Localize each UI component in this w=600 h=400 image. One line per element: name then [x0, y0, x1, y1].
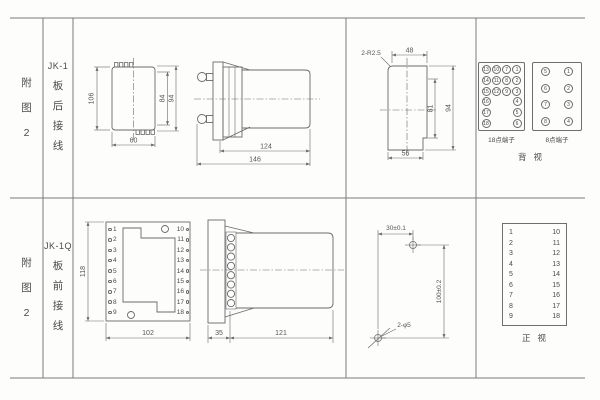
- terminal-circle: 14: [482, 76, 491, 85]
- pin-number: 4: [113, 257, 117, 264]
- pin-number: 13: [177, 257, 184, 264]
- pin-number: 8: [113, 299, 117, 306]
- mapping-right: 14: [552, 271, 560, 278]
- terminal-circle: 12: [492, 87, 501, 96]
- mapping-row: 817: [509, 303, 560, 310]
- terminal-row: 164: [482, 97, 522, 106]
- pin-number: 12: [177, 247, 184, 254]
- front-pin: 7: [108, 288, 117, 295]
- terminal-circle: 5: [541, 67, 550, 76]
- mapping-right: 13: [552, 261, 560, 268]
- row1-model-cell: JK-1 板后接线: [43, 18, 73, 198]
- terminal-row: 175: [482, 108, 522, 117]
- pin-dot-icon: [108, 311, 112, 315]
- mapping-right: 15: [552, 282, 560, 289]
- drawing-sheet: 106 84 94 60 124 146: [0, 0, 600, 400]
- jk1-front-outline-drawing: [112, 58, 155, 141]
- dim-121: 121: [275, 330, 287, 337]
- terminal-block-8-label: 8点端子: [532, 134, 582, 144]
- pin-number: 2: [113, 236, 117, 243]
- terminal-circle: 10: [492, 65, 501, 74]
- pin-number: 7: [113, 288, 117, 295]
- dim-30: 30±0.1: [386, 225, 406, 232]
- dim-124: 124: [260, 144, 272, 151]
- mapping-right: 12: [552, 250, 560, 257]
- terminal-circle: 3: [512, 87, 521, 96]
- front-pin: 15: [177, 278, 189, 285]
- terminal-circle: 8: [541, 117, 550, 126]
- mapping-row: 716: [509, 292, 560, 299]
- mapping-left: 4: [509, 261, 513, 268]
- front-pin: 4: [108, 257, 117, 264]
- pin-dot-icon: [108, 249, 112, 253]
- row2-model-label: JK-1Q: [44, 241, 72, 251]
- pin-dot-icon: [108, 269, 112, 273]
- mapping-left: 3: [509, 250, 513, 257]
- jk1q-drilling-drawing: [368, 237, 421, 348]
- terminal-row: 62: [541, 84, 573, 93]
- terminal-circle: 1: [564, 67, 573, 76]
- terminal-block-18: 131071141182151293164175186: [478, 62, 525, 131]
- pin-dot-icon: [108, 290, 112, 294]
- terminal-circle: 11: [492, 76, 501, 85]
- row2-model-cell: JK-1Q 板前接线: [43, 198, 73, 378]
- jk1-side-view-drawing: [194, 62, 320, 140]
- mapping-left: 8: [509, 303, 513, 310]
- label-corner-radius: 2-R2.5: [361, 50, 381, 57]
- terminal-block-8: 51627384: [532, 62, 582, 131]
- pin-dot-icon: [186, 290, 190, 294]
- front-pin: 17: [177, 299, 189, 306]
- dim-60: 60: [130, 138, 138, 145]
- mapping-right: 16: [552, 292, 560, 299]
- dim-94b: 94: [446, 104, 453, 112]
- dim-48: 48: [406, 48, 414, 55]
- mapping-left: 9: [509, 313, 513, 320]
- front-pin: 9: [108, 309, 117, 316]
- terminal-circle: 4: [564, 117, 573, 126]
- mapping-right: 11: [553, 240, 560, 247]
- front-pin: 14: [177, 268, 189, 275]
- pin-number: 17: [177, 299, 184, 306]
- mapping-row: 312: [509, 250, 560, 257]
- terminal-circle: 8: [502, 76, 511, 85]
- front-pin: 11: [177, 236, 189, 243]
- pin-dot-icon: [108, 259, 112, 263]
- mapping-left: 5: [509, 271, 513, 278]
- row1-wiring-label: 板后接线: [52, 76, 65, 156]
- pin-number: 5: [113, 268, 117, 275]
- mapping-row: 615: [509, 282, 560, 289]
- dim-118: 118: [80, 266, 87, 277]
- terminal-circle: 15: [482, 87, 491, 96]
- label-hole-size: 2-φ5: [397, 322, 411, 329]
- terminal-circle: 13: [482, 65, 491, 74]
- dim-56: 56: [402, 151, 410, 158]
- jk1q-side-view-drawing: [200, 220, 344, 323]
- terminal-row: 84: [541, 117, 573, 126]
- mapping-left: 7: [509, 292, 513, 299]
- pin-number: 18: [177, 309, 184, 316]
- dim-35: 35: [215, 330, 223, 337]
- pin-number: 16: [177, 288, 184, 295]
- terminal-circle: 16: [482, 97, 491, 106]
- pin-dot-icon: [186, 228, 190, 232]
- pin-dot-icon: [108, 238, 112, 242]
- front-pin: 2: [108, 236, 117, 243]
- pin-number: 10: [177, 226, 184, 233]
- mapping-row: 918: [509, 313, 560, 320]
- dim-94: 94: [169, 95, 176, 103]
- front-right-pins: 101112131415161718: [171, 226, 189, 316]
- row1-figure-label: 附图2: [20, 71, 33, 146]
- terminal-circle: 7: [502, 65, 511, 74]
- terminal-row: 141182: [482, 76, 522, 85]
- terminal-row: 51: [541, 67, 573, 76]
- terminal-circle: 1: [512, 65, 521, 74]
- mapping-left: 6: [509, 282, 513, 289]
- front-pin: 8: [108, 299, 117, 306]
- pin-dot-icon: [186, 238, 190, 242]
- pin-number: 9: [113, 309, 117, 316]
- terminal-block-18-label: 18点端子: [474, 134, 529, 144]
- terminal-row: 73: [541, 100, 573, 109]
- mapping-row: 110: [509, 229, 560, 236]
- mapping-right: 18: [552, 313, 560, 320]
- mapping-right: 10: [552, 229, 560, 236]
- terminal-row: 131071: [482, 65, 522, 74]
- pin-number: 11: [177, 236, 184, 243]
- row2-figure-label: 附图2: [20, 251, 33, 326]
- dim-106: 106: [89, 93, 96, 105]
- jk1q-side-dimensions: [208, 310, 333, 343]
- pin-dot-icon: [108, 280, 112, 284]
- dim-100: 100±0.2: [436, 279, 443, 303]
- front-pin: 6: [108, 278, 117, 285]
- pin-number: 3: [113, 247, 117, 254]
- mapping-right: 17: [552, 303, 560, 310]
- pin-dot-icon: [186, 249, 190, 253]
- dim-84: 84: [160, 95, 167, 103]
- row2-wiring-label: 板前接线: [52, 256, 65, 336]
- dim-102: 102: [142, 330, 154, 337]
- front-pin: 13: [177, 257, 189, 264]
- dim-146: 146: [249, 157, 261, 164]
- terminal-circle: 17: [482, 108, 491, 117]
- terminal-circle: 5: [513, 108, 522, 117]
- terminal-row: 186: [482, 119, 522, 128]
- terminal-mapping-table: 110211312413514615716817918: [502, 223, 567, 326]
- pin-dot-icon: [186, 269, 190, 273]
- terminal-circle: 2: [564, 84, 573, 93]
- pin-dot-icon: [108, 228, 112, 232]
- terminal-circle: 6: [541, 84, 550, 93]
- terminal-circle: 4: [513, 97, 522, 106]
- pin-number: 14: [177, 268, 184, 275]
- terminal-row: 151293: [482, 87, 522, 96]
- pin-dot-icon: [108, 300, 112, 304]
- pin-dot-icon: [186, 300, 190, 304]
- front-pin: 5: [108, 268, 117, 275]
- terminal-circle: 6: [513, 119, 522, 128]
- pin-dot-icon: [186, 311, 190, 315]
- front-pin: 3: [108, 247, 117, 254]
- mapping-row: 211: [509, 240, 560, 247]
- dim-81: 81: [428, 105, 435, 113]
- row1-model-label: JK-1: [48, 61, 69, 71]
- front-pin: 1: [108, 226, 117, 233]
- rear-view-label: 背视: [494, 151, 566, 163]
- row2-figure-cell: 附图2: [10, 198, 43, 378]
- front-pin: 16: [177, 288, 189, 295]
- terminal-circle: 18: [482, 119, 491, 128]
- pin-number: 1: [113, 226, 117, 233]
- mapping-row: 514: [509, 271, 560, 278]
- front-left-pins: 123456789: [108, 226, 117, 316]
- terminal-circle: 7: [541, 100, 550, 109]
- mapping-row: 413: [509, 261, 560, 268]
- mapping-left: 1: [509, 229, 513, 236]
- pin-dot-icon: [186, 280, 190, 284]
- pin-dot-icon: [186, 259, 190, 263]
- mapping-left: 2: [509, 240, 513, 247]
- front-pin: 18: [177, 309, 189, 316]
- terminal-circle: 2: [512, 76, 521, 85]
- pin-number: 15: [177, 278, 184, 285]
- front-pin: 10: [177, 226, 189, 233]
- terminal-circle: 3: [564, 100, 573, 109]
- pin-number: 6: [113, 278, 117, 285]
- row1-figure-cell: 附图2: [10, 18, 43, 198]
- front-pin: 12: [177, 247, 189, 254]
- front-view-label: 正视: [498, 332, 570, 344]
- terminal-circle: 9: [502, 87, 511, 96]
